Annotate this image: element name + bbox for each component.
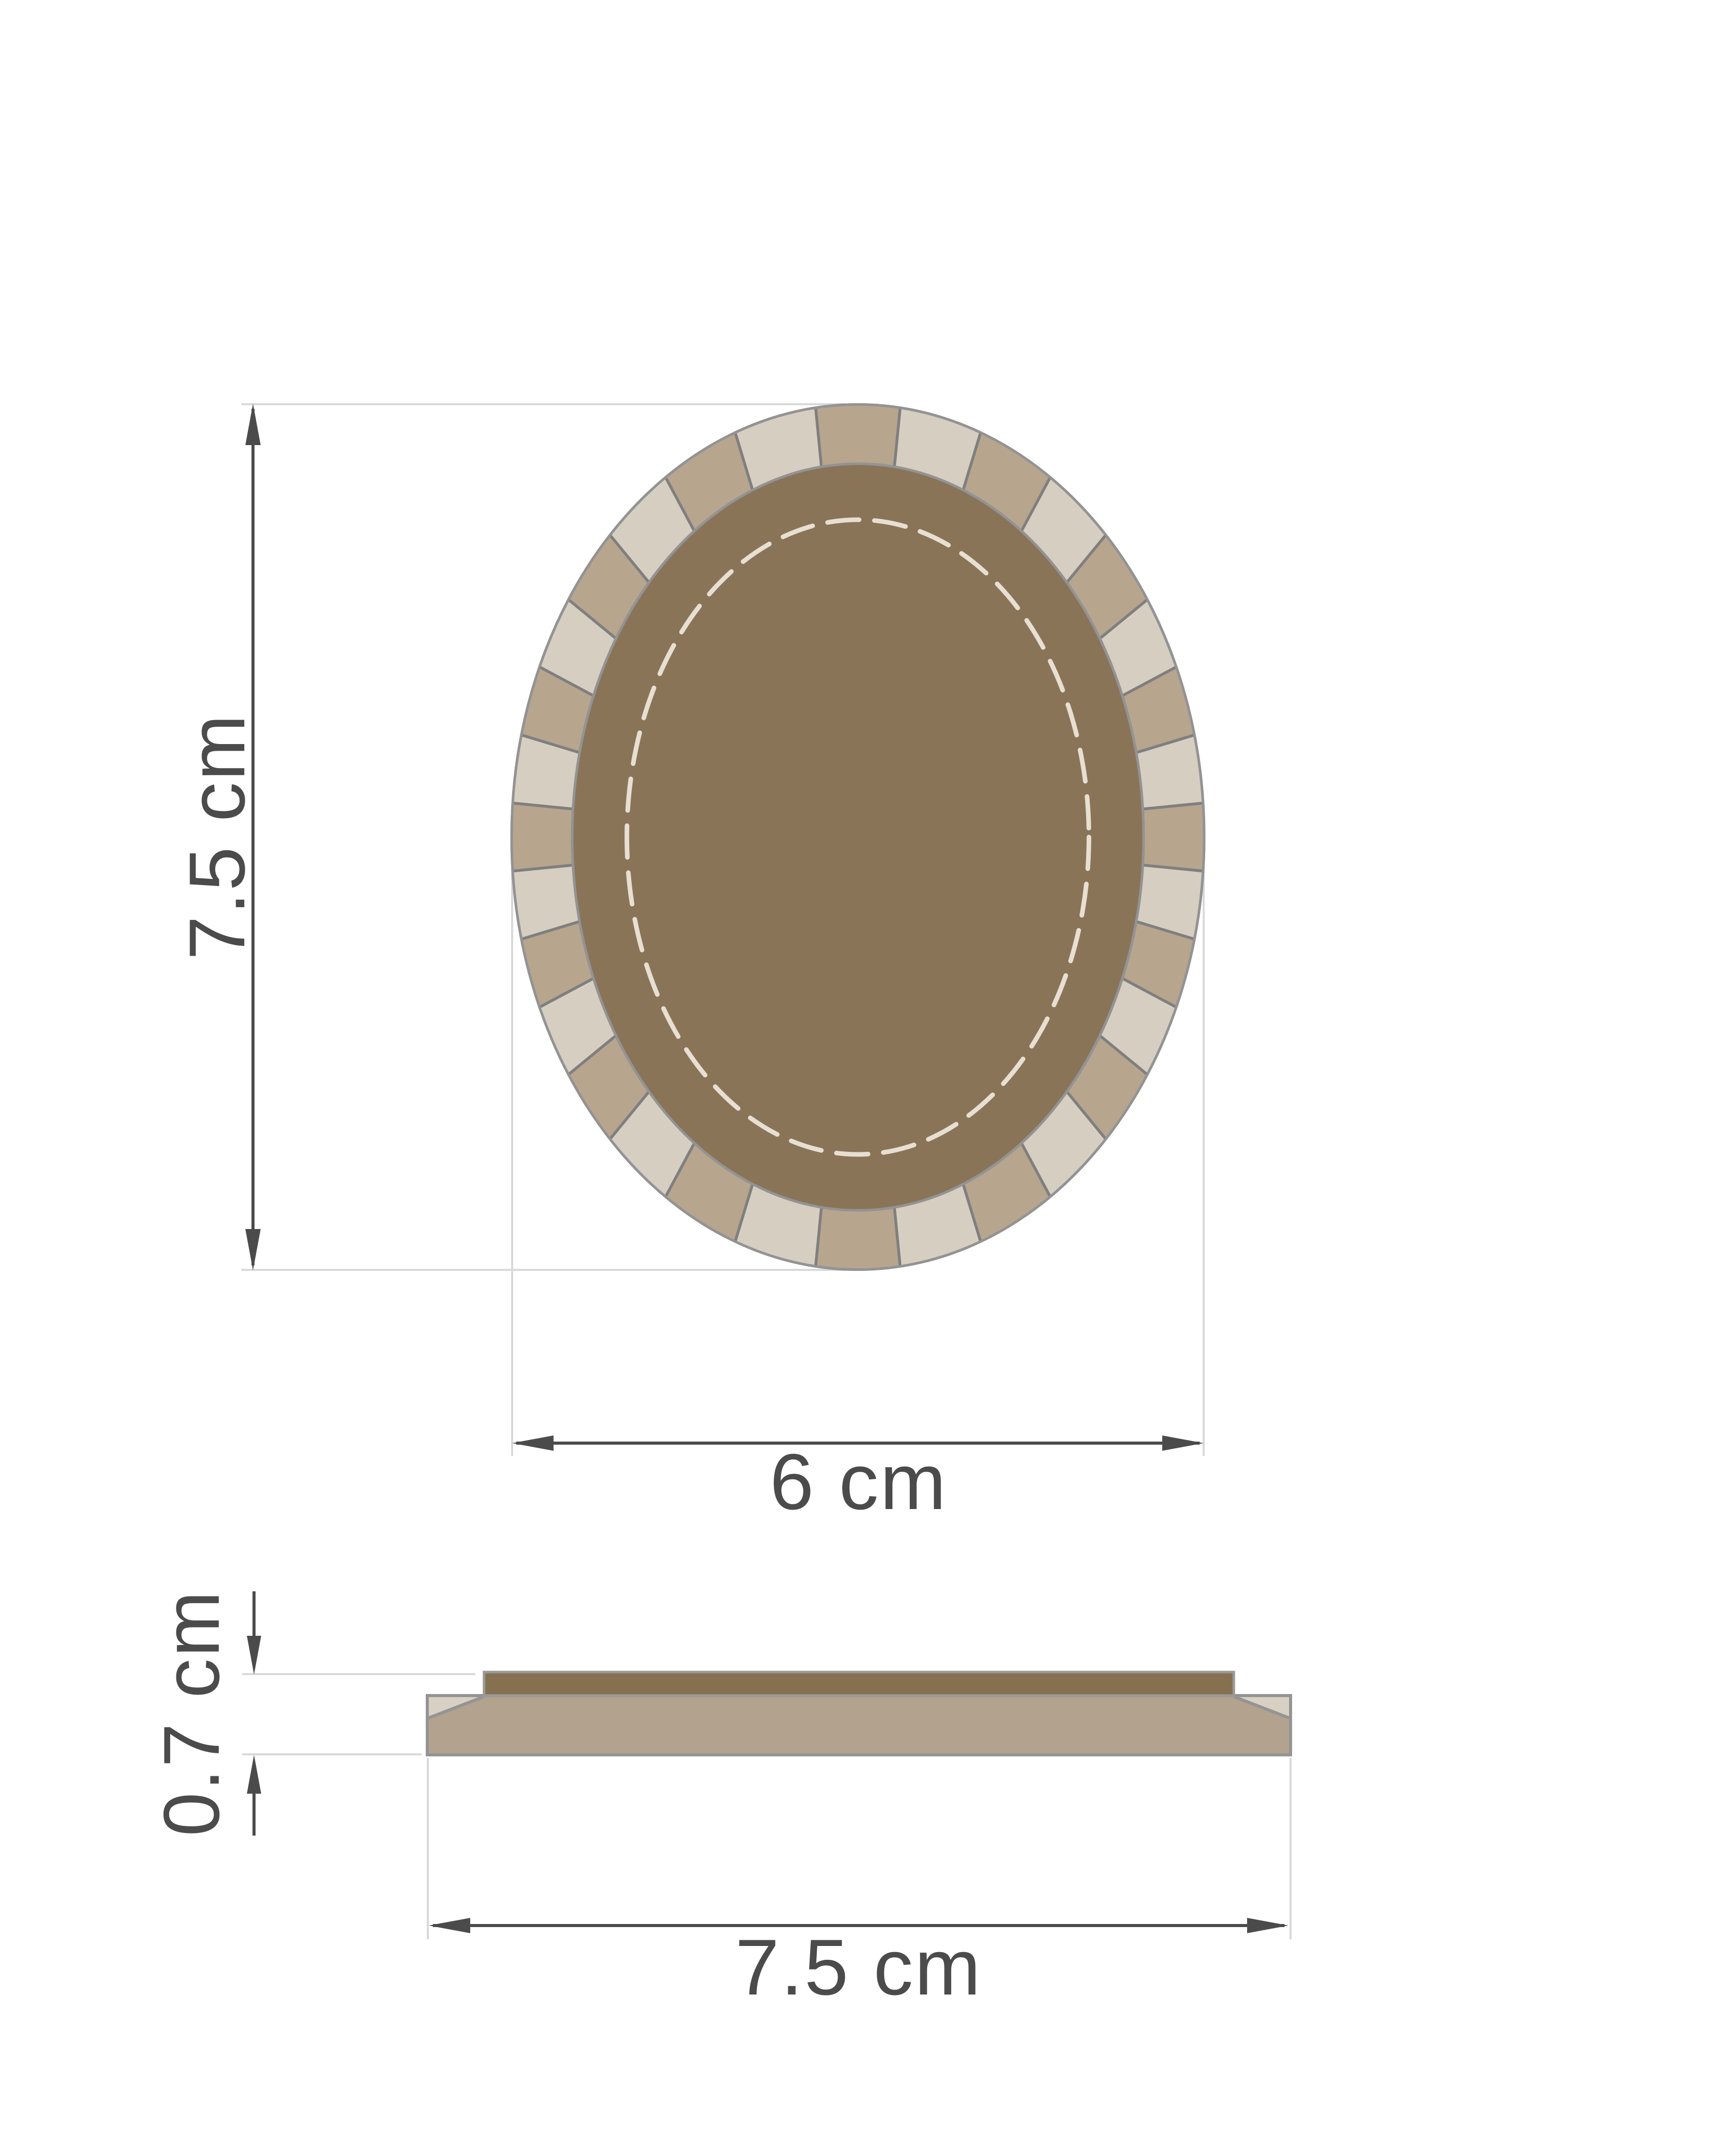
svg-text:0.7 cm: 0.7 cm [147,1589,236,1836]
svg-text:7.5 cm: 7.5 cm [735,1923,982,2011]
svg-text:7.5 cm: 7.5 cm [173,713,261,960]
svg-text:6 cm: 6 cm [770,1438,948,1526]
